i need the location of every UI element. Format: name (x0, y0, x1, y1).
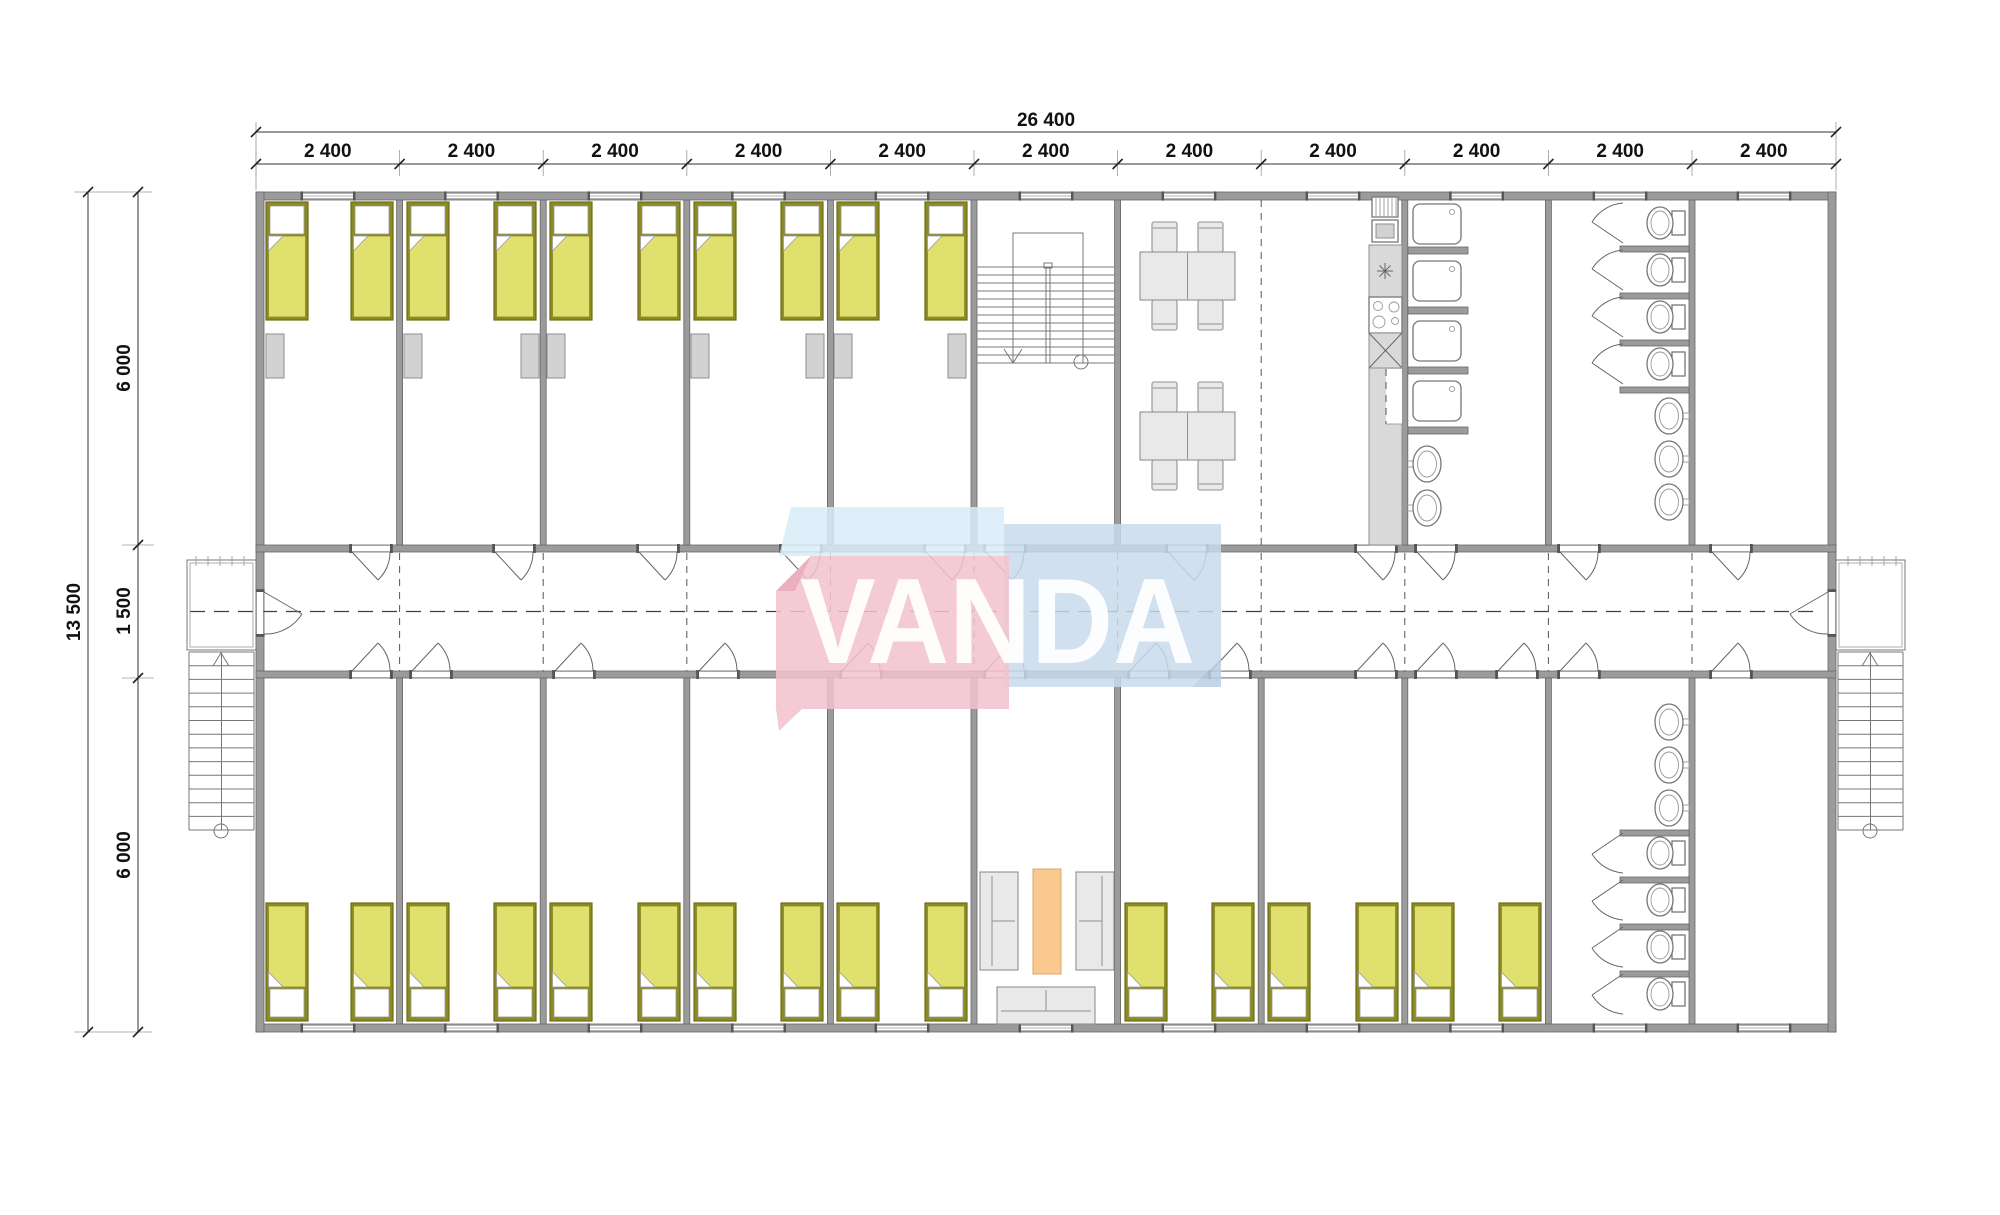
sink (1655, 398, 1689, 434)
svg-text:2 400: 2 400 (304, 141, 352, 162)
sink (1407, 446, 1441, 482)
external-stair-right (1836, 556, 1905, 838)
svg-text:2 400: 2 400 (1166, 141, 1214, 162)
door-swing (1498, 643, 1536, 671)
chair (1152, 222, 1177, 252)
stall-door (1592, 250, 1623, 290)
svg-text:2 400: 2 400 (591, 141, 639, 162)
stairwell (977, 233, 1115, 369)
wardrobe (806, 334, 824, 378)
toilet-room-top (1592, 203, 1689, 520)
chair (1198, 300, 1223, 330)
door-swing (1357, 643, 1395, 671)
bed (550, 903, 592, 1021)
bed (781, 202, 823, 320)
bed (837, 202, 879, 320)
door-swing (1560, 643, 1598, 671)
entry-door-right (1790, 589, 1836, 637)
svg-text:2 400: 2 400 (1022, 141, 1070, 162)
dining-table (1140, 252, 1235, 300)
svg-text:2 400: 2 400 (1309, 141, 1357, 162)
door-swing (639, 552, 677, 580)
bed (1125, 903, 1167, 1021)
door-swing (1712, 552, 1750, 580)
bed (351, 202, 393, 320)
shower-stall (1413, 261, 1461, 301)
stall-door (1592, 344, 1623, 384)
door-swing (352, 643, 390, 671)
wardrobes (266, 334, 966, 378)
bed (407, 903, 449, 1021)
stall-door (1592, 203, 1623, 243)
chair (1152, 382, 1177, 412)
shower-stall (1413, 381, 1461, 421)
dim-lower-band: 6 000 (114, 831, 135, 879)
dining-table (1140, 412, 1235, 460)
bed (494, 903, 536, 1021)
wardrobe (834, 334, 852, 378)
toilet (1647, 837, 1685, 869)
wardrobe (521, 334, 539, 378)
dimension-left: 13 500 6 000 1 500 6 000 (64, 187, 154, 1037)
external-stair-left (187, 556, 256, 838)
svg-text:2 400: 2 400 (1596, 141, 1644, 162)
svg-text:2 400: 2 400 (735, 141, 783, 162)
toilet (1647, 931, 1685, 963)
bed (1356, 903, 1398, 1021)
floor-plan-canvas: 26 400 2 400 2 400 2 400 2 400 (0, 0, 2000, 1215)
chair (1152, 460, 1177, 490)
wardrobe (948, 334, 966, 378)
door-swing (1712, 643, 1750, 671)
bed (925, 903, 967, 1021)
bed (407, 202, 449, 320)
dim-corridor: 1 500 (114, 587, 135, 635)
dim-total-width: 26 400 (1017, 110, 1075, 131)
bed (1268, 903, 1310, 1021)
toilet (1647, 301, 1685, 333)
stall-door (1592, 974, 1623, 1014)
stall-door (1592, 833, 1623, 873)
stair-landing (1836, 560, 1905, 650)
svg-text:2 400: 2 400 (448, 141, 496, 162)
chair (1198, 382, 1223, 412)
door-swing (495, 552, 533, 580)
kitchen-counter (1369, 197, 1402, 545)
watermark-shape-lightblue (779, 507, 1004, 556)
bed (638, 903, 680, 1021)
stair-end-circle (1074, 355, 1088, 369)
toilet (1647, 207, 1685, 239)
toilet (1647, 884, 1685, 916)
beds-lower (266, 903, 1541, 1021)
stove (1369, 297, 1402, 333)
sink (1655, 704, 1689, 740)
wardrobe (404, 334, 422, 378)
dining-area (1140, 222, 1235, 490)
bed (1412, 903, 1454, 1021)
svg-text:2 400: 2 400 (1740, 141, 1788, 162)
stair-void (1013, 233, 1083, 363)
chair (1198, 460, 1223, 490)
stall-door (1592, 927, 1623, 967)
bed (837, 903, 879, 1021)
door-swing (1417, 643, 1455, 671)
door-swing (1417, 552, 1455, 580)
shower-room (1407, 204, 1468, 526)
stall-door (1592, 880, 1623, 920)
sink (1655, 441, 1689, 477)
sink (1655, 747, 1689, 783)
door-swing (1357, 552, 1395, 580)
toilet (1647, 254, 1685, 286)
door-swing (699, 643, 737, 671)
shower-stall (1413, 321, 1461, 361)
door-swing (555, 643, 593, 671)
wardrobe (266, 334, 284, 378)
chair (1152, 300, 1177, 330)
stair-landing (187, 560, 256, 650)
coffee-table (1033, 869, 1061, 974)
bed (351, 903, 393, 1021)
watermark-text: VANDA (800, 553, 1195, 689)
door-swing (412, 643, 450, 671)
bed (694, 903, 736, 1021)
watermark: VANDA (776, 507, 1221, 731)
door-swing (352, 552, 390, 580)
toilet-room-bottom (1592, 704, 1689, 1014)
dim-total-height: 13 500 (64, 583, 85, 641)
sink (1655, 484, 1689, 520)
shower-stall (1413, 204, 1461, 244)
wardrobe (691, 334, 709, 378)
sink (1407, 490, 1441, 526)
floor-plan-drawing: 26 400 2 400 2 400 2 400 2 400 (0, 0, 2000, 1215)
sink (1655, 790, 1689, 826)
bed (1212, 903, 1254, 1021)
bed (1499, 903, 1541, 1021)
dim-module-labels: 2 400 2 400 2 400 2 400 2 400 2 400 2 40… (304, 141, 1788, 162)
entry-door-left (256, 589, 302, 637)
bed (266, 903, 308, 1021)
stall-door (1592, 297, 1623, 337)
bed (266, 202, 308, 320)
chair (1198, 222, 1223, 252)
toilet (1647, 348, 1685, 380)
lounge (980, 869, 1114, 1024)
door-swing (1560, 552, 1598, 580)
toilet (1647, 978, 1685, 1010)
svg-text:2 400: 2 400 (1453, 141, 1501, 162)
wardrobe (547, 334, 565, 378)
dimension-top: 26 400 2 400 2 400 2 400 2 400 (251, 110, 1841, 190)
bed (550, 202, 592, 320)
bed (781, 903, 823, 1021)
beds-upper (266, 202, 967, 320)
bed (494, 202, 536, 320)
bed (925, 202, 967, 320)
dim-upper-band: 6 000 (114, 344, 135, 392)
bed (694, 202, 736, 320)
svg-text:2 400: 2 400 (878, 141, 926, 162)
bed (638, 202, 680, 320)
